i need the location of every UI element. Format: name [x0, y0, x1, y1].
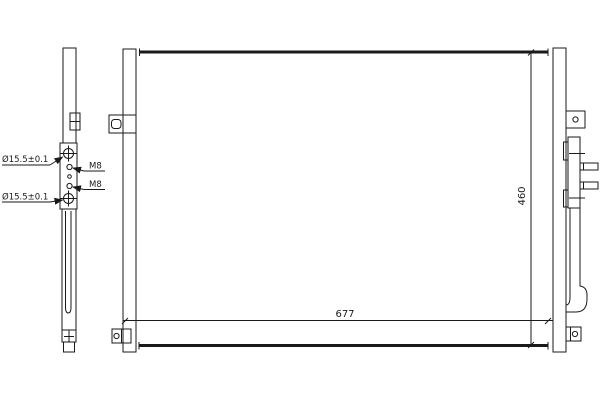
bent-tube	[566, 208, 587, 312]
thread-label-top: M8	[89, 162, 102, 172]
right-tank-bottom-bracket	[566, 327, 581, 341]
pilot-hole-icon	[68, 175, 72, 179]
diameter-label-bottom: Ø15.5±0.1	[2, 192, 48, 203]
receiver-drier	[60, 48, 80, 352]
thread-label-bottom: M8	[89, 180, 102, 190]
mount-hole-icon	[114, 333, 119, 338]
mount-hole-icon	[572, 331, 577, 336]
callouts: Ø15.5±0.1 M8 M8 Ø15.5±0.1	[2, 154, 105, 203]
leader-line-3	[73, 187, 84, 190]
fitting-hole-bottom-icon	[61, 191, 77, 207]
connector-block	[564, 137, 599, 208]
pipe-stub-bottom	[580, 182, 598, 189]
drier-lower-tube	[62, 209, 76, 330]
left-tank	[109, 49, 136, 352]
drier-sight-slot	[66, 211, 72, 313]
dim-height-value: 460	[517, 186, 528, 205]
right-tank-body	[553, 48, 566, 352]
leader-line-4	[50, 200, 63, 202]
drier-valve	[62, 330, 76, 342]
condenser-diagram: Ø15.5±0.1 M8 M8 Ø15.5±0.1	[0, 0, 600, 400]
technical-drawing: Ø15.5±0.1 M8 M8 Ø15.5±0.1	[0, 0, 600, 400]
right-tank-top-bracket	[566, 111, 585, 128]
drier-clamp-bracket	[70, 113, 80, 130]
dimension-width: 677	[122, 309, 553, 324]
left-tank-bottom-bracket	[112, 329, 131, 343]
leader-line-1	[50, 157, 63, 165]
bolt-hole-top-icon	[67, 164, 72, 169]
drier-foot	[64, 342, 75, 352]
dim-width-value: 677	[335, 309, 354, 320]
diameter-label-top: Ø15.5±0.1	[2, 154, 48, 165]
dimension-height: 460	[517, 50, 534, 349]
leader-line-2	[73, 168, 84, 171]
pipe-stub-top	[580, 163, 598, 170]
left-tank-body	[123, 49, 136, 352]
fitting-hole-top-icon	[61, 146, 77, 162]
right-tank	[553, 48, 598, 352]
mount-hole-icon	[573, 117, 578, 122]
bolt-hole-bottom-icon	[67, 183, 72, 188]
condenser-core	[139, 49, 548, 350]
